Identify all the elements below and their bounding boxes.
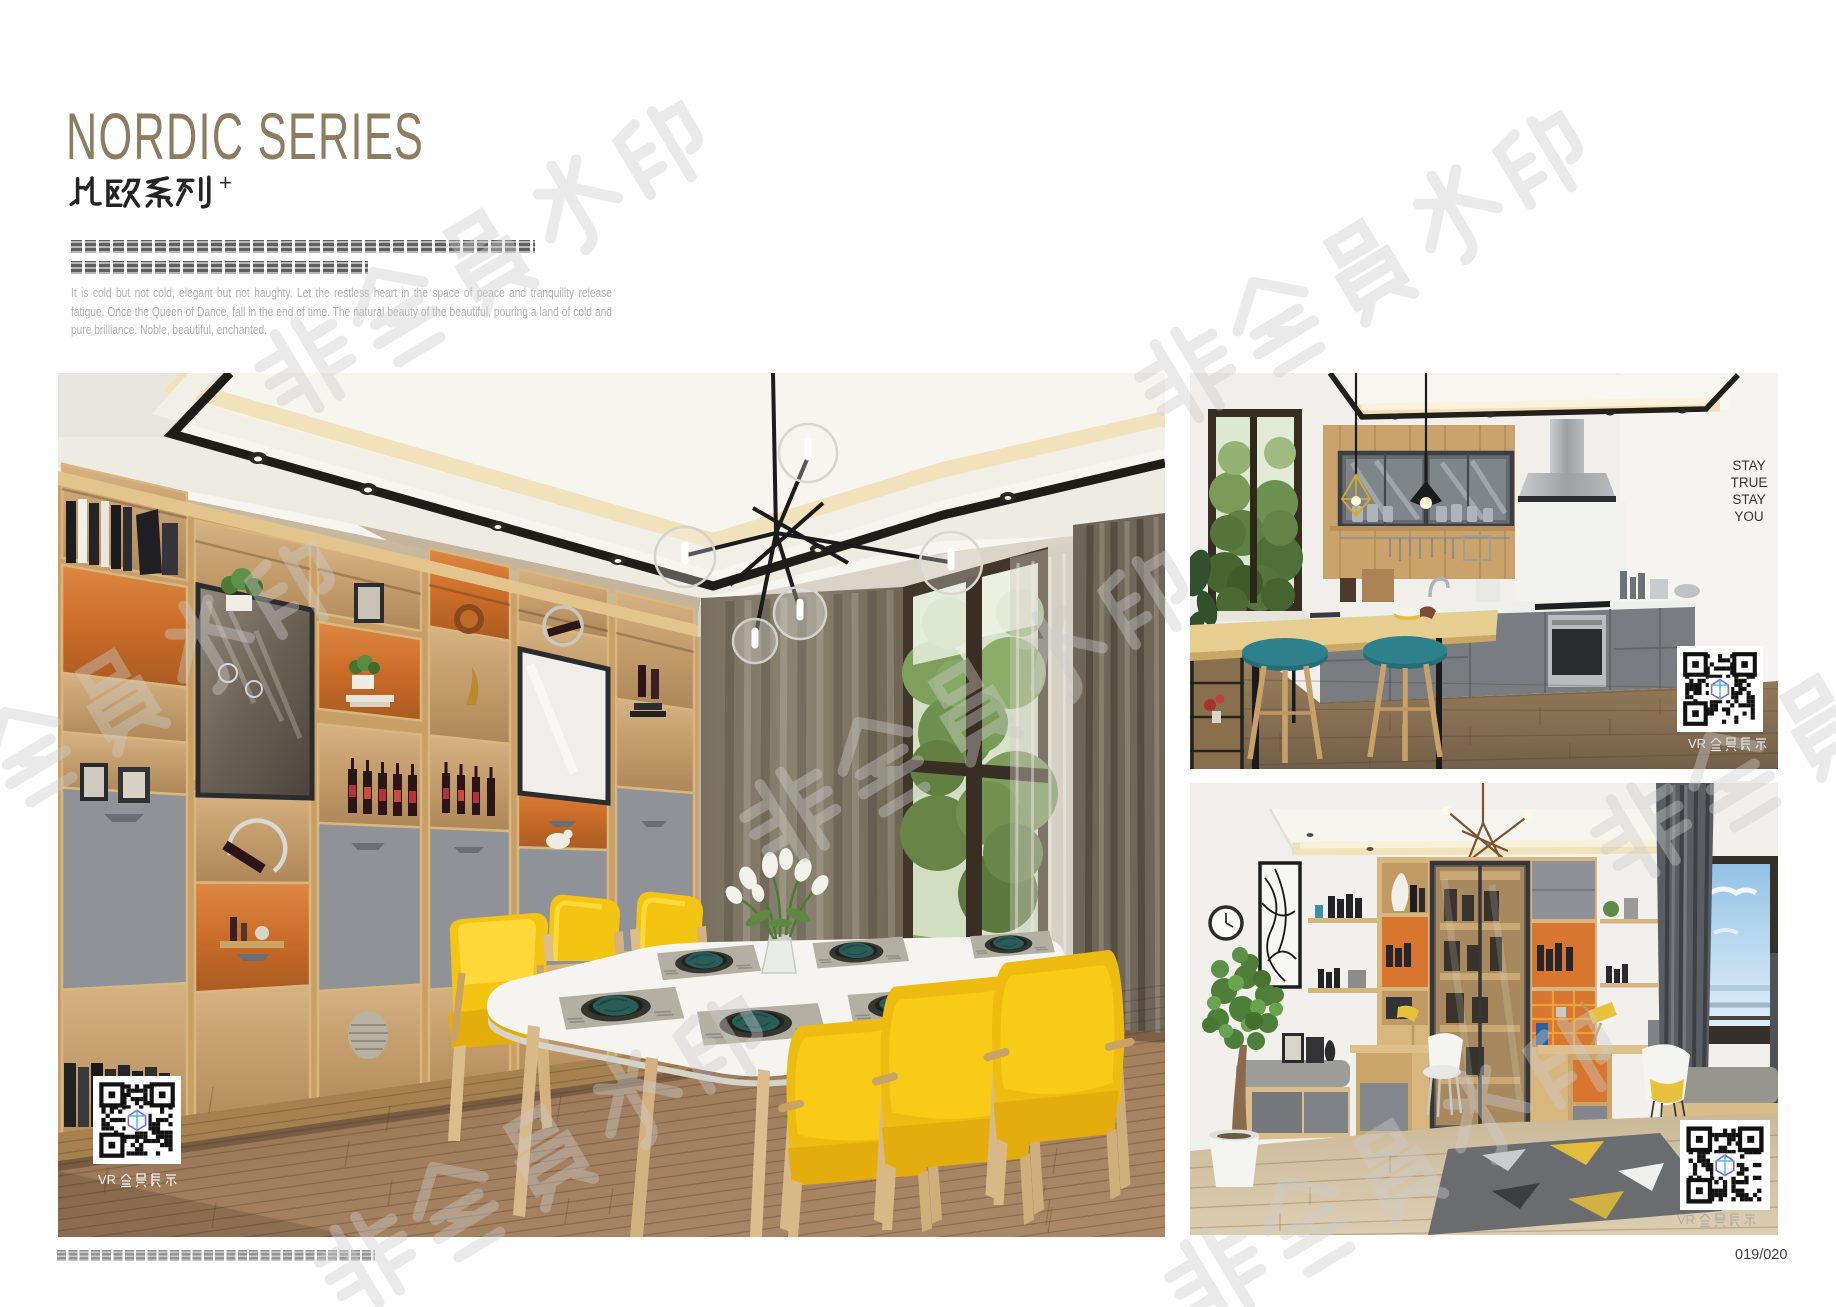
svg-text:YOU: YOU: [1734, 509, 1763, 524]
svg-text:STAY: STAY: [1732, 458, 1765, 473]
svg-text:VR: VR: [1688, 736, 1706, 751]
svg-text:VR: VR: [1677, 1212, 1695, 1227]
svg-text:TRUE: TRUE: [1731, 475, 1768, 490]
svg-text:STAY: STAY: [1732, 492, 1765, 507]
svg-text:VR: VR: [98, 1172, 116, 1187]
